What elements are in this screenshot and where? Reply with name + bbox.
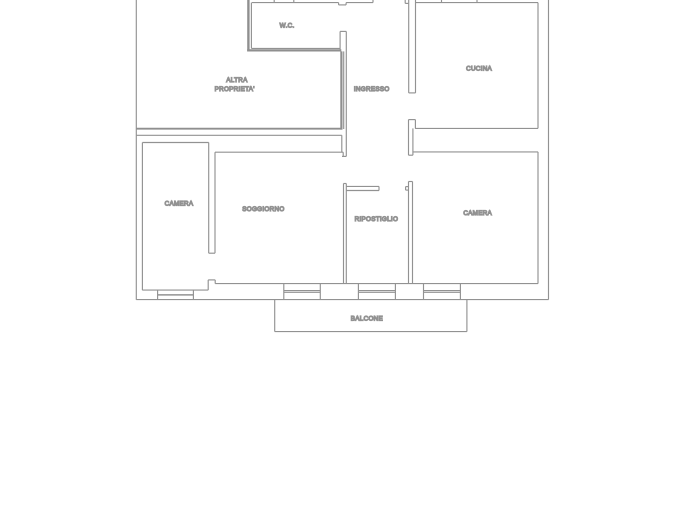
svg-text:W.C.: W.C. [280, 23, 295, 30]
svg-text:BALCONE: BALCONE [351, 315, 383, 322]
svg-text:SOGGIORNO: SOGGIORNO [242, 206, 284, 213]
svg-text:CUCINA: CUCINA [466, 65, 492, 72]
svg-text:CAMERA: CAMERA [165, 200, 194, 207]
svg-text:INGRESSO: INGRESSO [354, 86, 390, 93]
svg-text:ALTRA: ALTRA [226, 77, 248, 84]
svg-text:PROPRIETA': PROPRIETA' [215, 86, 255, 93]
svg-text:CAMERA: CAMERA [463, 210, 492, 217]
svg-text:RIPOSTIGLIO: RIPOSTIGLIO [355, 216, 399, 223]
